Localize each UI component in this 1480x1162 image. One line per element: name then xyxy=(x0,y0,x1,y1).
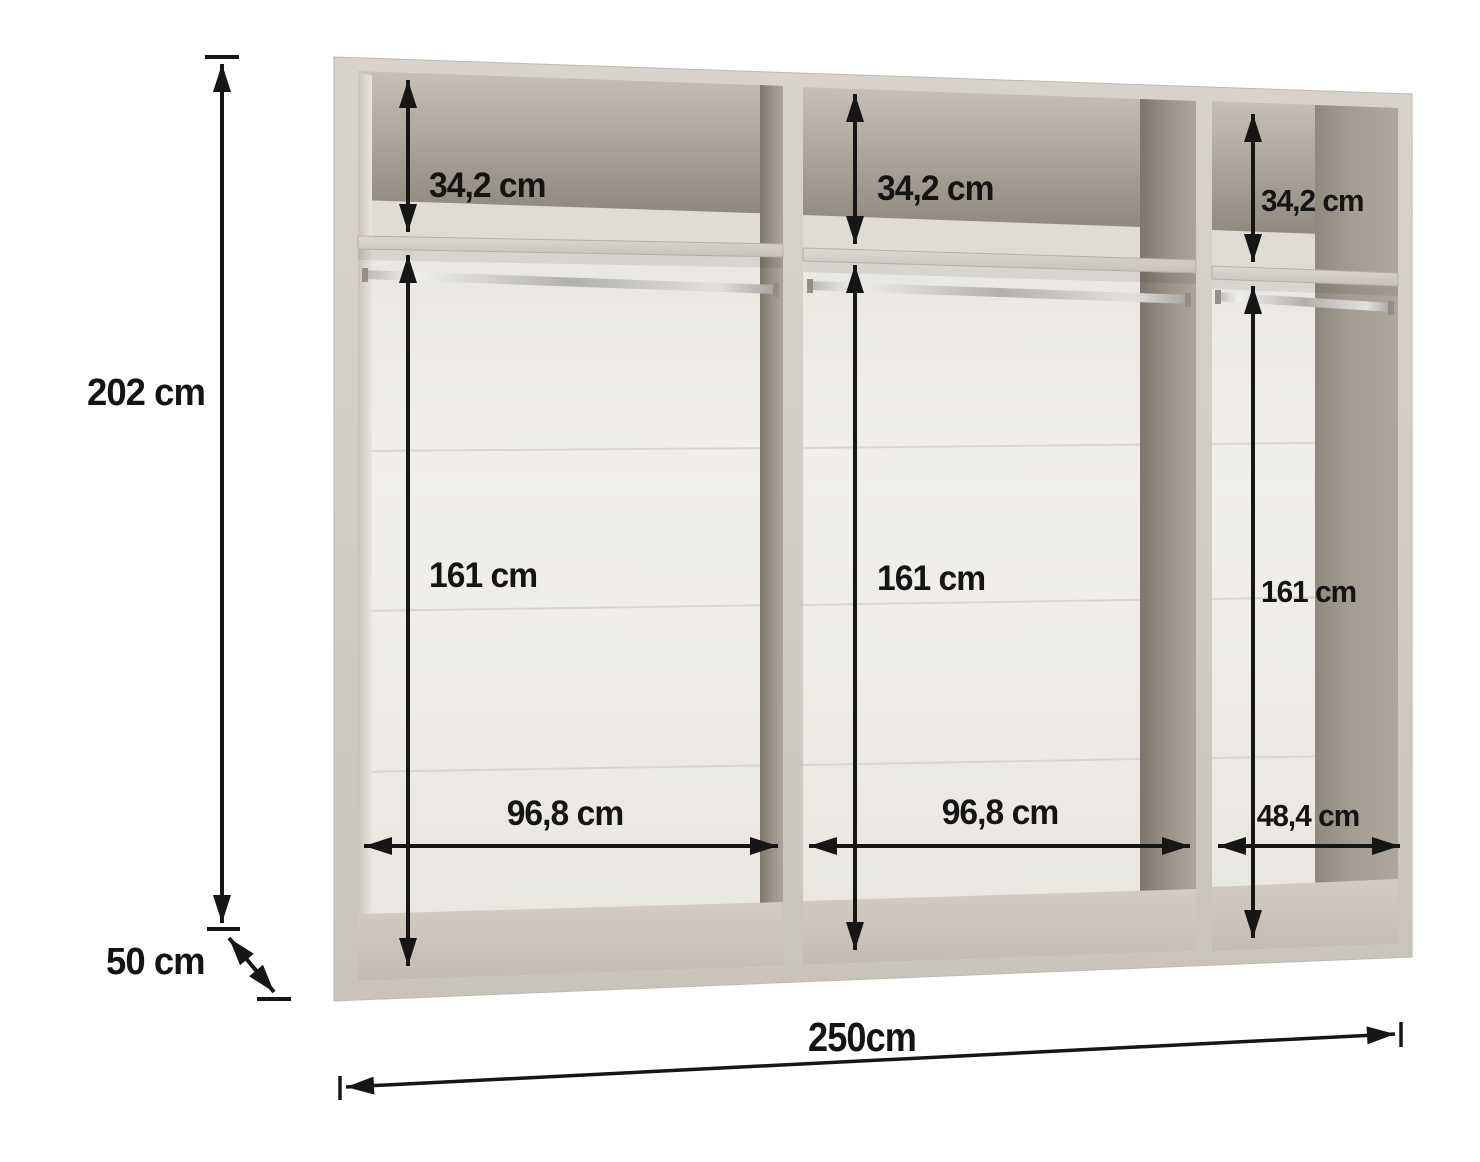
rail-bracket xyxy=(1215,290,1221,304)
compartment-middle xyxy=(803,87,1196,965)
wardrobe-render xyxy=(0,0,1480,1162)
rail-bracket xyxy=(362,268,368,282)
compartment-right-floor xyxy=(1212,879,1398,951)
compartment-left-ceiling xyxy=(358,71,783,214)
overall-depth-label: 50 cm xyxy=(106,943,205,981)
c1-shelf-height-label: 34,2 cm xyxy=(429,168,546,203)
divider-2-side-face xyxy=(1140,99,1196,951)
overall-width-label: 250cm xyxy=(772,1017,952,1058)
c1-width-label: 96,8 cm xyxy=(459,796,670,831)
rail-bracket xyxy=(773,283,779,297)
c3-width-label: 48,4 cm xyxy=(1214,800,1402,831)
compartment-middle-ceiling xyxy=(803,87,1196,229)
rail-bracket xyxy=(807,279,813,293)
c3-shelf-height-label: 34,2 cm xyxy=(1261,185,1363,216)
depth-dim-arrow xyxy=(229,938,274,992)
c1-hanging-height-label: 161 cm xyxy=(429,558,537,593)
c2-shelf-height-label: 34,2 cm xyxy=(877,171,994,206)
c2-width-label: 96,8 cm xyxy=(894,795,1105,830)
wardrobe-dimension-diagram: 202 cm 50 cm 250cm 34,2 cm 34,2 cm 34,2 … xyxy=(0,0,1480,1162)
rail-bracket xyxy=(1388,301,1394,315)
rail-bracket xyxy=(1185,293,1191,307)
divider-1-side-face xyxy=(760,85,783,966)
c2-hanging-height-label: 161 cm xyxy=(877,561,985,596)
overall-height-label: 202 cm xyxy=(61,374,205,412)
c3-hanging-height-label: 161 cm xyxy=(1261,576,1356,607)
